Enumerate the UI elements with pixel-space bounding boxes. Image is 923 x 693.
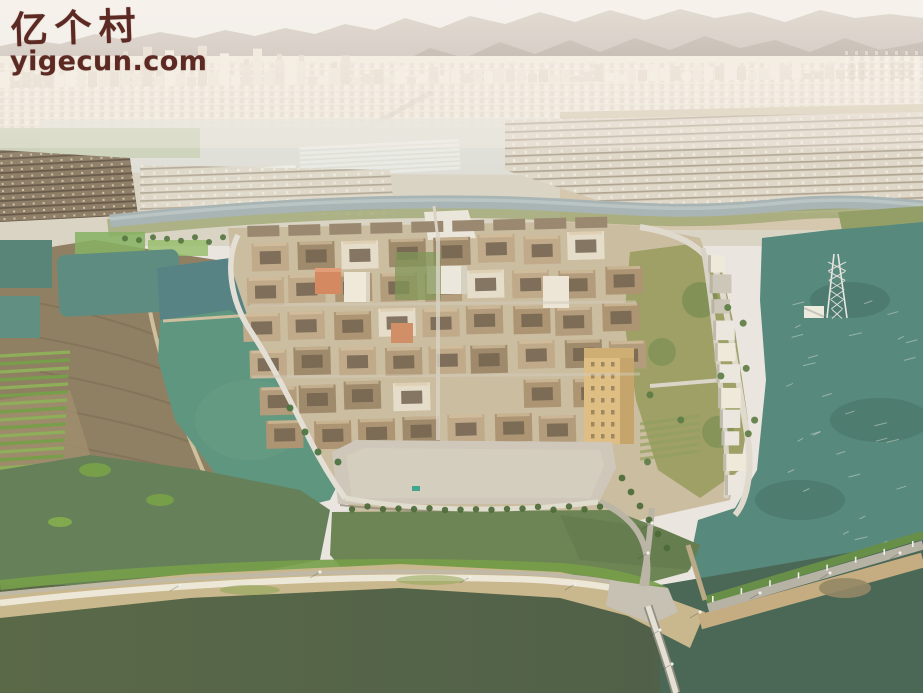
screenshot-aerial-village-photo: 亿个村 yigecun.com	[0, 0, 923, 693]
aerial-photo	[0, 0, 923, 693]
